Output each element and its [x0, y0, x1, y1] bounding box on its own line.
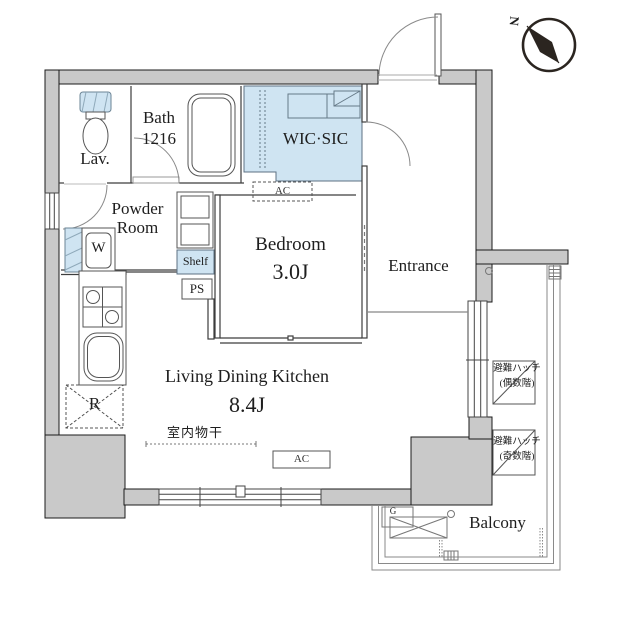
entrance-door [378, 14, 441, 80]
hatch-odd-line1: 避難ハッチ [484, 435, 550, 450]
bath-size-label: 1216 [123, 129, 195, 149]
ldk-label: Living Dining Kitchen [142, 366, 352, 387]
washer-label: W [82, 240, 115, 257]
powder-line2: Room [85, 218, 190, 237]
indoor-drying-label: 室内物干 [161, 422, 229, 441]
vanity-icon [65, 228, 82, 272]
indoor-drying-bar [146, 441, 256, 447]
gas-meter-label: G [386, 506, 400, 516]
powder-room-label: Powder Room [85, 199, 190, 237]
drain-icon [444, 551, 458, 560]
ac-label-bedroom: AC [253, 185, 312, 197]
wic-door [366, 122, 410, 166]
entrance-label: Entrance [366, 256, 471, 276]
compass-north-label: N [505, 12, 522, 29]
balcony-label: Balcony [445, 513, 550, 533]
ldk-size-label: 8.4J [142, 392, 352, 418]
bottom-window [159, 486, 321, 507]
floorplan-page: Lav. Bath 1216 Powder Room WIC·SIC Bedro… [0, 0, 640, 640]
bathtub-icon [188, 94, 235, 176]
wic-label: WIC·SIC [263, 129, 368, 149]
hatch-odd-label: 避難ハッチ (奇数階) [484, 435, 550, 464]
ac-label-ldk: AC [273, 453, 330, 465]
bath-label: Bath [123, 108, 195, 128]
shelf-label: Shelf [177, 254, 214, 269]
hatch-even-label: 避難ハッチ (偶数階) [484, 362, 550, 391]
toilet-icon [80, 92, 111, 154]
refrigerator-label: R [66, 394, 123, 414]
hatch-even-line2: (偶数階) [484, 377, 550, 392]
powder-line1: Powder [85, 199, 190, 218]
lav-label: Lav. [60, 149, 130, 169]
bedroom-label: Bedroom [238, 234, 343, 256]
ladder-icon [549, 266, 561, 279]
compass-icon [523, 19, 575, 71]
hatch-even-line1: 避難ハッチ [484, 362, 550, 377]
bedroom-size-label: 3.0J [238, 259, 343, 285]
floorplan-drawing [0, 0, 640, 640]
left-window [45, 193, 59, 229]
right-window [466, 301, 489, 417]
kitchen-counter-icon [79, 271, 126, 385]
ps-label: PS [182, 281, 212, 297]
hatch-odd-line2: (奇数階) [484, 450, 550, 465]
